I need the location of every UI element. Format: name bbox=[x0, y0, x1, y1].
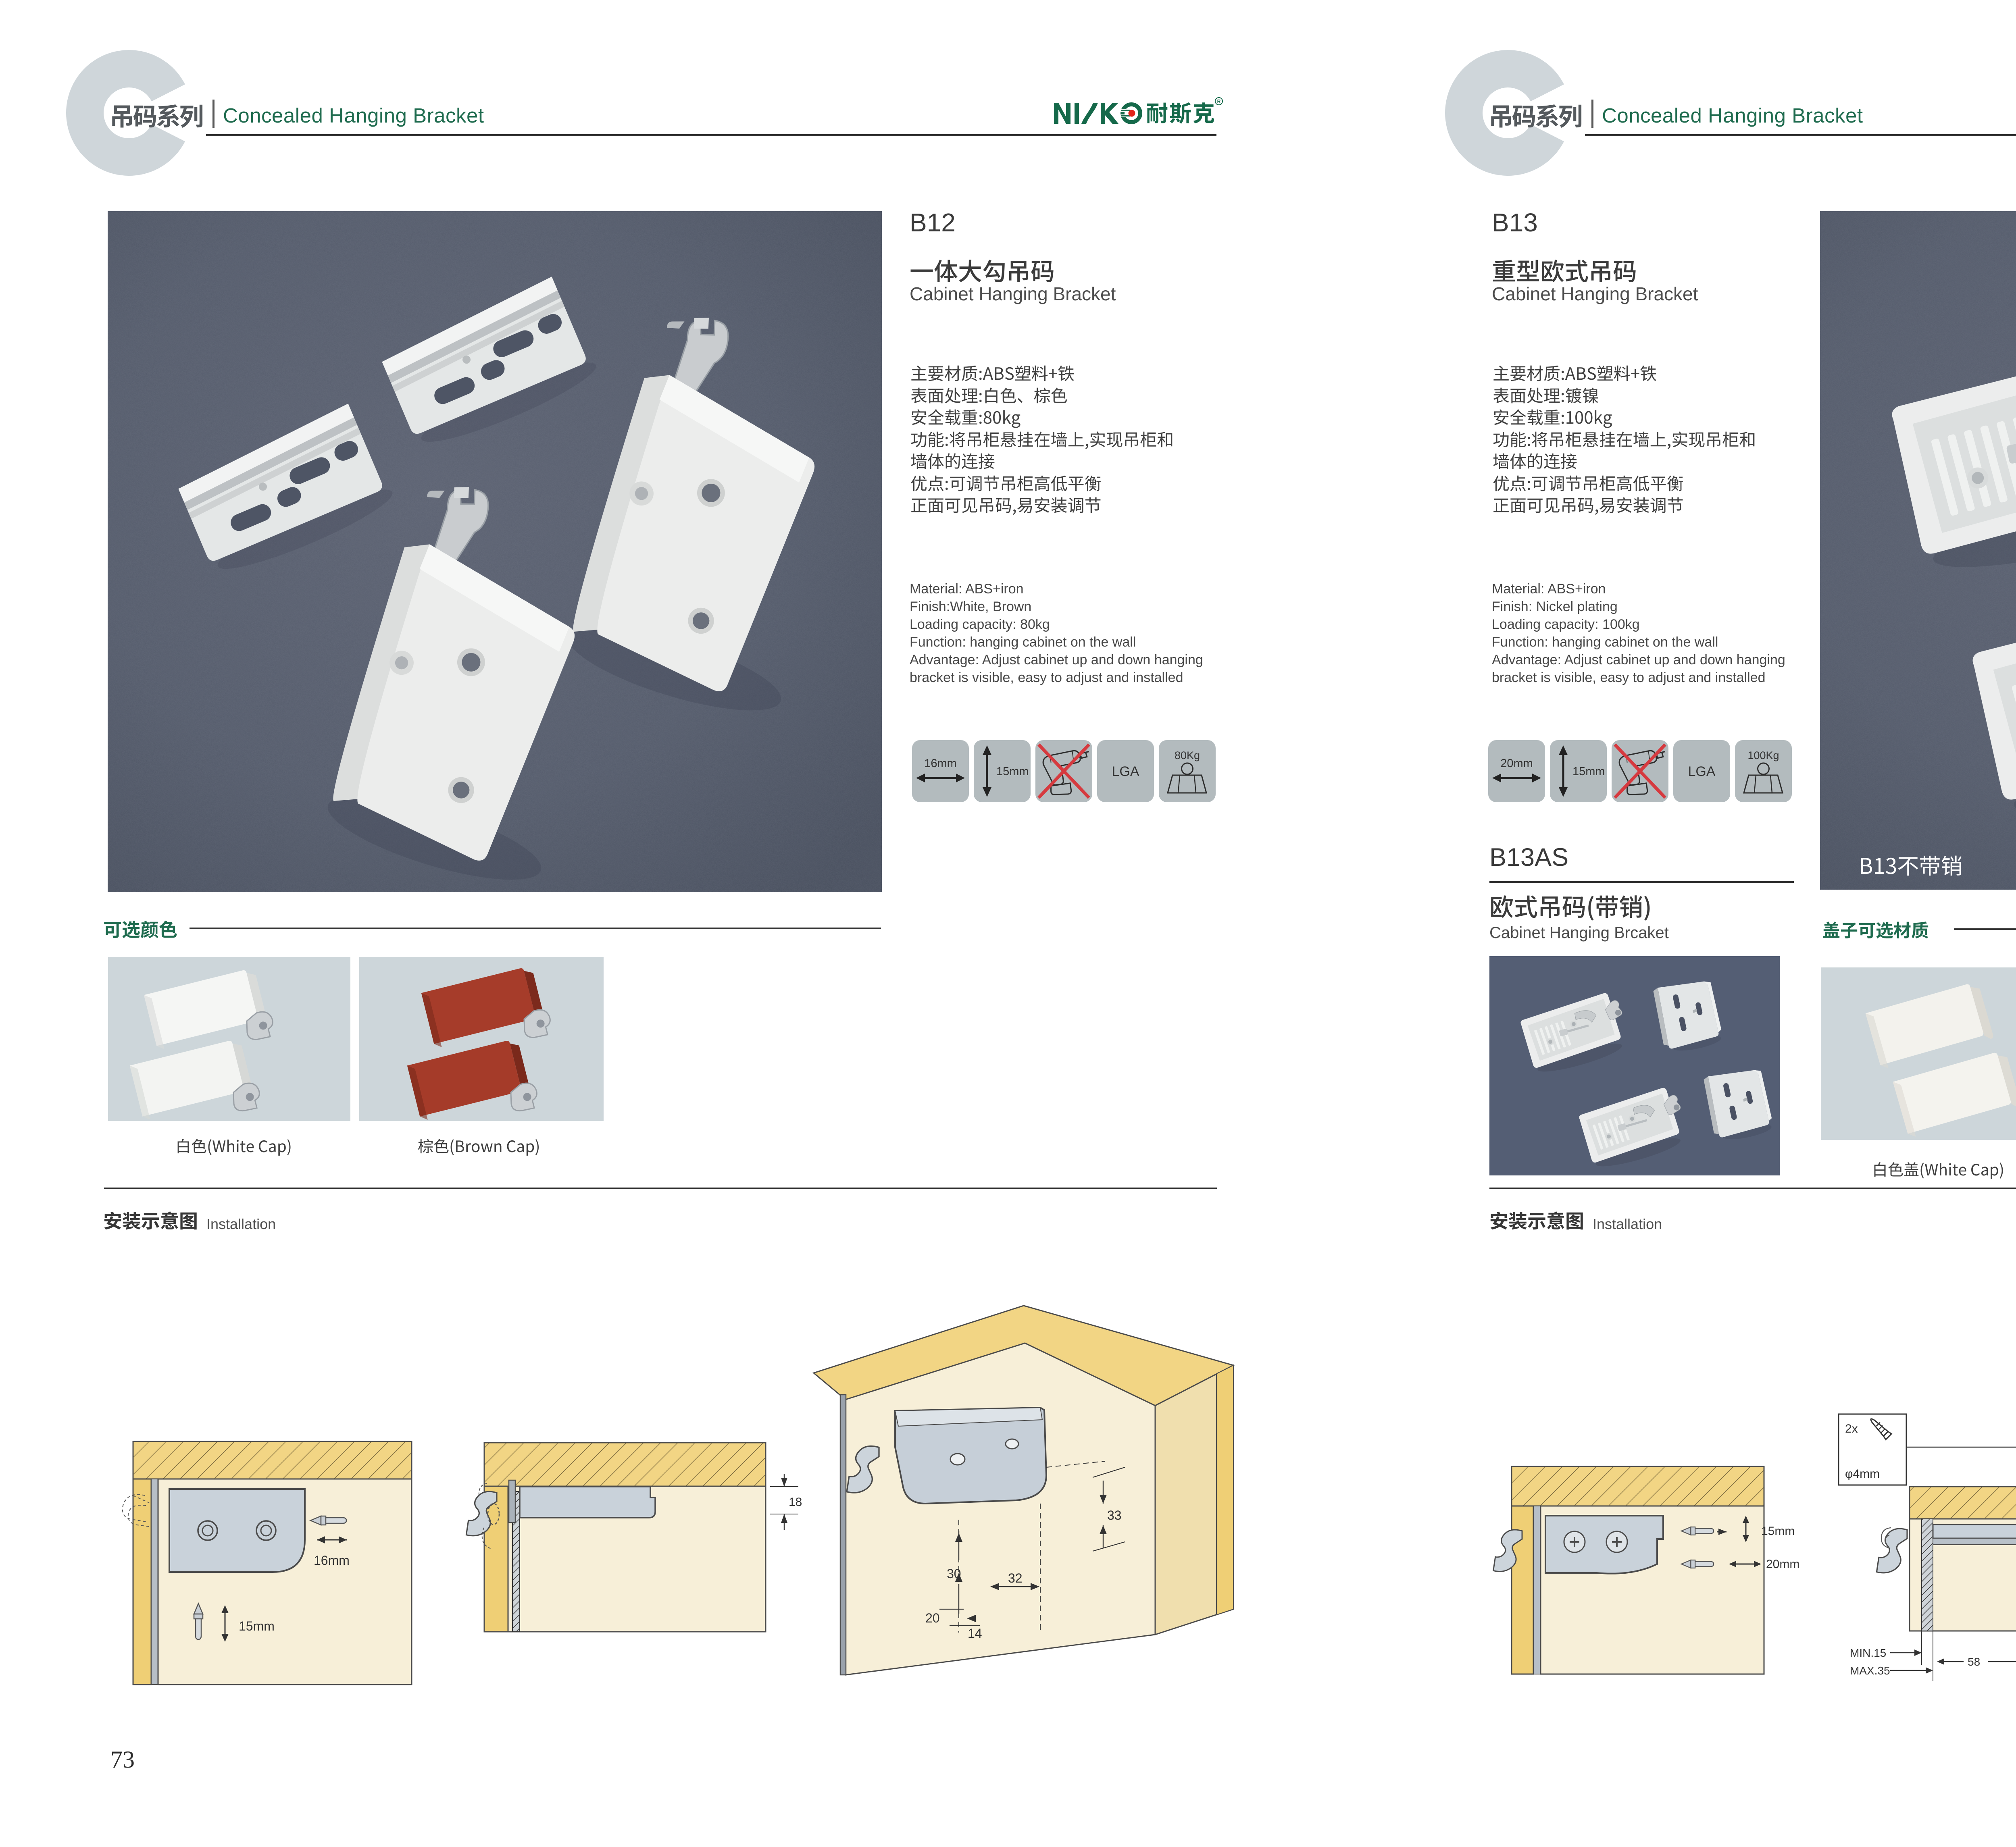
svg-text:15mm: 15mm bbox=[239, 1619, 275, 1633]
svg-text:MAX.35: MAX.35 bbox=[1850, 1664, 1890, 1677]
svg-text:2x: 2x bbox=[1845, 1422, 1858, 1435]
svg-text:15mm: 15mm bbox=[1761, 1525, 1795, 1538]
svg-text:LGA: LGA bbox=[1688, 764, 1715, 779]
svg-text:φ4mm: φ4mm bbox=[1845, 1467, 1880, 1481]
svg-text:30: 30 bbox=[947, 1566, 961, 1581]
svg-text:15mm: 15mm bbox=[1572, 765, 1605, 778]
svg-text:20mm: 20mm bbox=[1766, 1558, 1799, 1571]
svg-text:100Kg: 100Kg bbox=[1747, 749, 1779, 761]
svg-text:16mm: 16mm bbox=[314, 1553, 350, 1568]
svg-text:14: 14 bbox=[968, 1626, 982, 1641]
svg-text:20mm: 20mm bbox=[1500, 757, 1533, 770]
svg-text:MIN.15: MIN.15 bbox=[1850, 1647, 1886, 1659]
svg-text:58: 58 bbox=[1968, 1656, 1980, 1668]
svg-text:20: 20 bbox=[925, 1611, 940, 1625]
svg-text:33: 33 bbox=[1107, 1508, 1122, 1523]
svg-text:32: 32 bbox=[1008, 1571, 1023, 1585]
